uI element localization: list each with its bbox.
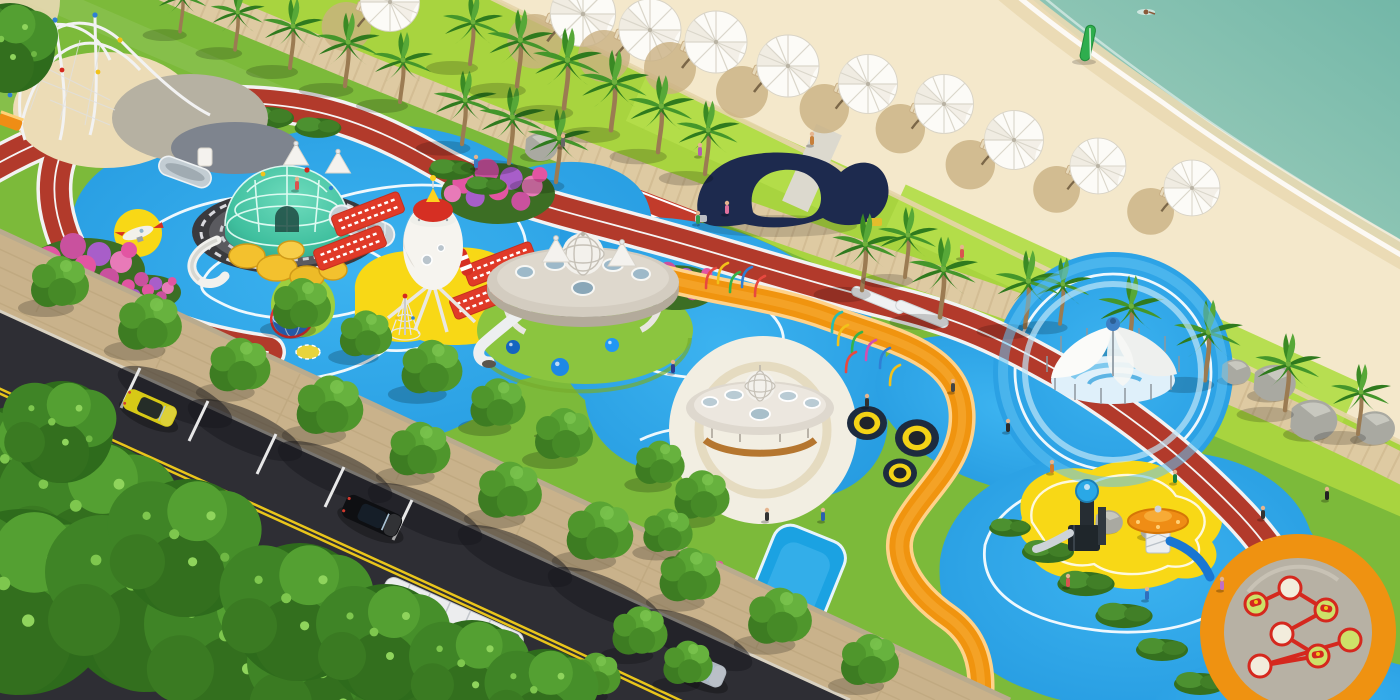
swimmer <box>1137 9 1155 15</box>
play-ball <box>605 338 619 352</box>
play-ball <box>506 340 520 354</box>
striped-hump-1 <box>296 345 320 359</box>
beach-playground-render <box>0 0 1400 700</box>
scene-svg <box>0 0 1400 700</box>
mini-tower <box>198 148 212 166</box>
trampoline-ring <box>847 406 887 440</box>
trampoline-ring <box>895 419 939 456</box>
play-ball <box>551 358 569 376</box>
trampoline-ring <box>883 459 917 488</box>
